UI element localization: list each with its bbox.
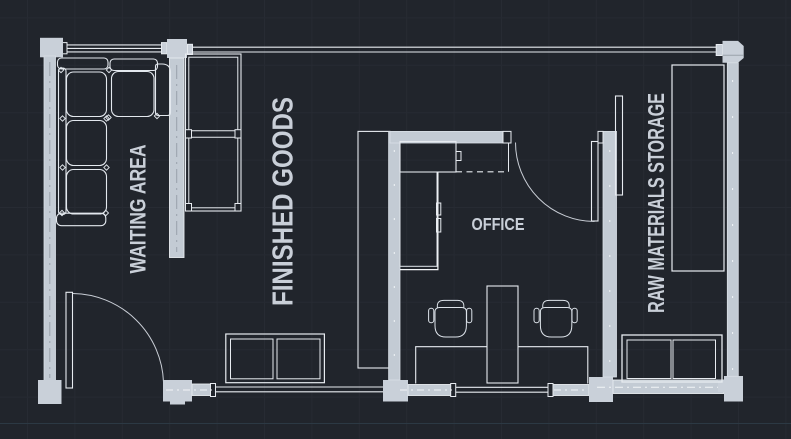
svg-text:RAW MATERIALS STORAGE: RAW MATERIALS STORAGE bbox=[643, 93, 669, 313]
svg-text:FINISHED GOODS: FINISHED GOODS bbox=[268, 97, 300, 306]
svg-text:WAITING AREA: WAITING AREA bbox=[126, 145, 151, 274]
svg-text:OFFICE: OFFICE bbox=[472, 214, 525, 234]
